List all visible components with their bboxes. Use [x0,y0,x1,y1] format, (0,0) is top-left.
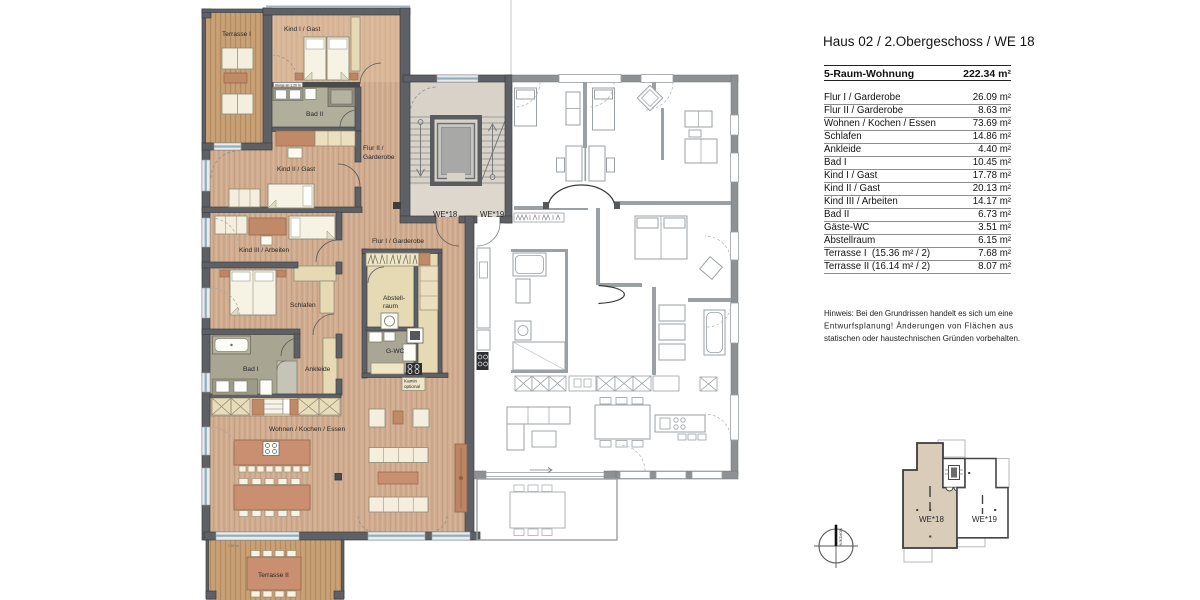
svg-text:Steige ab 1,20 m: Steige ab 1,20 m [275,84,301,88]
svg-text:Terrasse II: Terrasse II [258,572,289,579]
svg-text:WE*18: WE*18 [919,515,944,524]
svg-text:raum: raum [383,303,399,310]
svg-text:Entwurfsplanung! Änderungen vo: Entwurfsplanung! Änderungen von Flächen … [824,321,1013,330]
svg-text:WE*18: WE*18 [433,210,457,219]
svg-text:Wohnen / Kochen / Essen: Wohnen / Kochen / Essen [269,426,345,433]
svg-text:Terrasse I: Terrasse I [222,31,251,38]
svg-text:Flur I / Garderobe: Flur I / Garderobe [372,238,424,245]
svg-text:WE*19: WE*19 [972,515,997,524]
svg-text:Kind III / Arbeiten: Kind III / Arbeiten [239,247,290,254]
svg-text:Ankleide: Ankleide [305,366,331,373]
svg-text:Garderobe: Garderobe [363,154,395,161]
svg-text:Schlafen: Schlafen [290,302,316,309]
svg-text:statischen oder haustechnische: statischen oder haustechnischen Gründen … [824,334,1020,343]
svg-text:Flur II /: Flur II / [363,145,384,152]
svg-text:optional: optional [404,384,420,389]
svg-text:WE*19: WE*19 [480,210,504,219]
svg-text:Hinweis: Bei den Grundrissen h: Hinweis: Bei den Grundrissen handelt es … [824,309,1014,318]
svg-text:Abstell-: Abstell- [383,295,405,302]
svg-text:Bad II: Bad II [306,111,323,118]
svg-text:G-WC: G-WC [386,348,405,355]
svg-text:Kind II / Gast: Kind II / Gast [277,166,315,173]
svg-text:Bad I: Bad I [243,366,259,373]
svg-text:Kamin: Kamin [404,379,417,384]
svg-text:NORDEN: NORDEN [839,528,844,545]
svg-text:1.85 m: 1.85 m [228,544,239,548]
svg-text:Kind I / Gast: Kind I / Gast [284,26,320,33]
